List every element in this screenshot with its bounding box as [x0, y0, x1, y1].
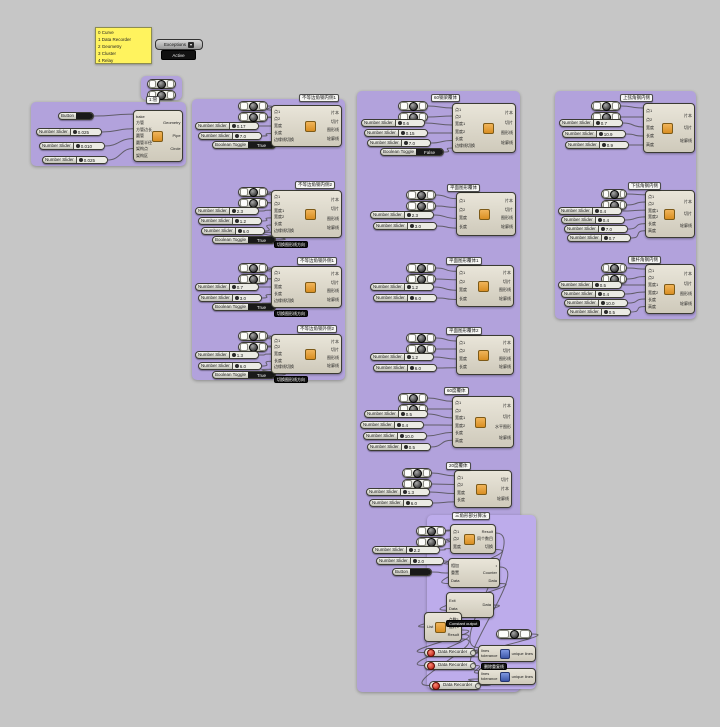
input-label: 高度	[648, 305, 656, 309]
control-knob[interactable]	[416, 526, 446, 536]
cluster-icon	[664, 209, 675, 220]
slider-value: 6.0	[411, 501, 417, 506]
cluster-icon	[435, 622, 446, 633]
slider-track[interactable]: 3.0	[407, 223, 436, 229]
slider-track[interactable]: 0.4	[394, 422, 423, 428]
slider-track[interactable]: 0.9	[599, 142, 628, 148]
slider-track[interactable]: 1.2	[232, 218, 261, 224]
input-label: List	[427, 625, 433, 629]
number-slider[interactable]: Number Slider2.3	[195, 207, 259, 215]
active-button[interactable]: Active	[161, 50, 196, 60]
control-knob[interactable]	[238, 263, 268, 273]
number-slider[interactable]: Number Slider2.0	[376, 557, 444, 565]
control-knob[interactable]	[402, 468, 432, 478]
slider-track[interactable]: 0.025	[76, 157, 107, 163]
slider-track[interactable]: 0.4	[595, 217, 624, 223]
input-label: 点1	[459, 199, 465, 203]
slider-track[interactable]: 0.5	[592, 282, 621, 288]
number-slider[interactable]: Number Slider6.0	[198, 362, 262, 370]
slider-grip[interactable]	[238, 229, 242, 233]
slider-grip[interactable]	[598, 218, 602, 222]
input-label: 点2	[648, 202, 654, 206]
slider-grip[interactable]	[232, 353, 236, 357]
slider-track[interactable]: 0.4	[592, 208, 621, 214]
exceptions-label: Exceptions	[164, 42, 186, 47]
input-label: 点1	[459, 271, 465, 275]
notes-panel[interactable]: 0 Curve 1 Data Recorder 2 Geometry 3 Clu…	[95, 27, 152, 64]
slider-label: Number Slider	[199, 219, 232, 224]
button-component[interactable]: Button	[392, 568, 432, 576]
slider-value: 10.0	[606, 301, 615, 306]
number-slider[interactable]: Number Slider0.17	[195, 122, 259, 130]
output-label: 轮廓线	[499, 365, 511, 369]
knob-ball[interactable]	[409, 394, 418, 403]
exceptions-dropdown[interactable]: Exceptions ▾	[155, 39, 203, 50]
note-line: 4 Relay	[98, 57, 149, 64]
control-knob[interactable]	[238, 101, 268, 111]
output-label: 切片	[684, 282, 692, 286]
slider-track[interactable]: 1.3	[229, 352, 258, 358]
button-press-area[interactable]	[76, 113, 93, 119]
input-label: 宽度1	[455, 416, 465, 420]
control-knob[interactable]	[496, 629, 532, 639]
slider-grip[interactable]	[401, 131, 405, 135]
slider-grip[interactable]	[413, 559, 417, 563]
slider-grip[interactable]	[401, 412, 405, 416]
slider-value: 0.9	[607, 143, 613, 148]
input-label: 圆管	[136, 134, 144, 138]
slider-track[interactable]: 10.9	[596, 131, 625, 137]
group-title-tag: 上弦角钢内侧	[620, 94, 653, 102]
knob-cheek	[593, 102, 601, 110]
slider-grip[interactable]	[403, 490, 407, 494]
number-slider[interactable]: Number Slider0.4	[561, 216, 625, 224]
chevron-down-icon[interactable]: ▾	[188, 42, 194, 48]
cluster-node[interactable]: 点1点2宽度长度片本切片图形线轮廓线	[456, 265, 514, 307]
knob-cheek	[419, 102, 427, 110]
unique-lines-node[interactable]: linestoleranceunique lines	[478, 668, 536, 685]
output-nub	[470, 663, 476, 669]
knob-ball[interactable]	[610, 190, 619, 199]
slider-grip[interactable]	[235, 134, 239, 138]
tag-text: 切换图形线方向	[277, 311, 305, 317]
input-label: 宽度	[457, 491, 465, 495]
slider-grip[interactable]	[410, 366, 414, 370]
output-label: 轮廓线	[499, 297, 511, 301]
output-label: unique lines	[512, 675, 533, 679]
number-slider[interactable]: Number Slider0.4	[558, 207, 622, 215]
output-label: 片本	[331, 340, 339, 344]
number-slider[interactable]: Number Slider1.2	[198, 217, 262, 225]
knob-cheek	[423, 469, 431, 477]
boolean-toggle[interactable]: Boolean ToggleTrue	[212, 371, 276, 379]
slider-track[interactable]: 2.3	[229, 208, 258, 214]
slider-value: 2.0	[418, 559, 424, 564]
record-icon[interactable]	[427, 649, 435, 657]
slider-grip[interactable]	[601, 227, 605, 231]
slider-track[interactable]: 10.0	[598, 300, 627, 306]
slider-track[interactable]: 1.2	[404, 354, 433, 360]
number-slider[interactable]: Number Slider0.5	[567, 308, 631, 316]
slider-grip[interactable]	[406, 501, 410, 505]
slider-value: 7.0	[240, 134, 246, 139]
knob-cheek	[149, 80, 156, 88]
slider-label: Number Slider	[563, 132, 596, 137]
input-label: 点2	[459, 208, 465, 212]
slider-grip[interactable]	[232, 209, 236, 213]
slider-grip[interactable]	[73, 130, 77, 134]
boolean-toggle[interactable]: Boolean ToggleTrue	[212, 141, 276, 149]
number-slider[interactable]: Number Slider3.0	[198, 294, 262, 302]
knob-ball[interactable]	[610, 264, 619, 273]
input-label: 方管	[136, 121, 144, 125]
input-label: 点2	[459, 349, 465, 353]
cluster-node[interactable]: 点1点2宽度长度片本切片图形线轮廓线	[456, 192, 516, 236]
control-knob[interactable]	[406, 333, 436, 343]
number-slider[interactable]: Number Slider0.5	[367, 443, 431, 451]
input-label: 点2	[648, 276, 654, 280]
knob-ball[interactable]	[249, 102, 258, 111]
control-knob[interactable]	[591, 101, 621, 111]
slider-value: 6.0	[415, 296, 421, 301]
cluster-node[interactable]: 点1点2宽度1宽度2长度高度片本切片水平图形轮廓线	[452, 396, 514, 448]
number-slider[interactable]: Number Slider0.7	[559, 119, 623, 127]
slider-grip[interactable]	[397, 423, 401, 427]
knob-ball[interactable]	[602, 102, 611, 111]
slider-track[interactable]: 7.0	[401, 140, 430, 146]
slider-track[interactable]: 3.0	[232, 295, 261, 301]
control-knob[interactable]	[238, 331, 268, 341]
slider-grip[interactable]	[407, 355, 411, 359]
slider-grip[interactable]	[232, 285, 236, 289]
tag-text: 删除重复线	[484, 664, 504, 670]
number-slider[interactable]: Number Slider6.0	[373, 294, 437, 302]
knob-ball[interactable]	[417, 334, 426, 343]
slider-track[interactable]: 2.0	[410, 558, 443, 564]
cluster-icon	[664, 284, 675, 295]
slider-value: 0.5	[600, 283, 606, 288]
slider-grip[interactable]	[410, 224, 414, 228]
slider-track[interactable]: 7.0	[598, 226, 627, 232]
knob-cheek	[408, 191, 416, 199]
control-knob[interactable]	[601, 189, 627, 199]
slider-grip[interactable]	[410, 296, 414, 300]
slider-track[interactable]: 0.17	[229, 123, 258, 129]
label-tag: 切换图形线方向	[274, 376, 308, 383]
input-label: 宽度	[459, 288, 467, 292]
slider-grip[interactable]	[404, 141, 408, 145]
slider-value: 1.3	[408, 490, 414, 495]
slider-grip[interactable]	[398, 121, 402, 125]
number-slider[interactable]: Number Slider7.0	[564, 225, 628, 233]
slider-track[interactable]: 0.5	[401, 444, 430, 450]
number-slider[interactable]: Number Slider0.4	[561, 290, 625, 298]
output-label: 切片	[684, 212, 692, 216]
knob-ball[interactable]	[427, 527, 436, 536]
slider-grip[interactable]	[235, 296, 239, 300]
input-label: 点1	[455, 108, 461, 112]
slider-grip[interactable]	[235, 219, 239, 223]
knob-ball[interactable]	[417, 202, 426, 211]
knob-ball[interactable]	[409, 102, 418, 111]
slider-grip[interactable]	[596, 121, 600, 125]
knob-ball[interactable]	[417, 191, 426, 200]
slider-track[interactable]: 6.0	[403, 500, 432, 506]
input-label: 宽度	[274, 285, 282, 289]
boolean-toggle[interactable]: Boolean ToggleTrue	[212, 236, 276, 244]
slider-label: Number Slider	[196, 285, 229, 290]
slider-value: 0.025	[84, 158, 95, 163]
number-slider[interactable]: Number Slider6.0	[373, 364, 437, 372]
number-slider[interactable]: Number Slider0.010	[39, 142, 105, 150]
slider-grip[interactable]	[404, 445, 408, 449]
knob-cheek	[520, 630, 531, 638]
input-label: 点2	[459, 280, 465, 284]
slider-track[interactable]: 0.010	[73, 143, 104, 149]
recorder-label: Data Recorder	[436, 650, 469, 655]
number-slider[interactable]: Number Slider7.0	[198, 132, 262, 140]
input-label: 点2	[457, 483, 463, 487]
slider-value: 2.3	[237, 209, 243, 214]
number-slider[interactable]: Number Slider0.7	[195, 283, 259, 291]
toggle-value[interactable]: True	[248, 237, 275, 243]
slider-value: 0.5	[609, 310, 615, 315]
cluster-node[interactable]: 点1点2宽度Result同个数目切换	[450, 524, 496, 554]
slider-track[interactable]: 0.4	[595, 291, 624, 297]
slider-label: Number Slider	[562, 218, 595, 223]
input-label: 重置	[451, 571, 459, 575]
boolean-toggle[interactable]: Boolean ToggleFalse	[380, 148, 444, 156]
knob-ball[interactable]	[417, 264, 426, 273]
slider-track[interactable]: 0.5	[601, 309, 630, 315]
knob-ball[interactable]	[249, 188, 258, 197]
slider-label: Number Slider	[367, 490, 400, 495]
knob-cheek	[603, 264, 609, 272]
number-slider[interactable]: Number Slider0.5	[364, 410, 428, 418]
number-slider[interactable]: Number Slider10.0	[564, 299, 628, 307]
input-label: 边缘线切换	[274, 365, 294, 369]
knob-ball[interactable]	[157, 80, 166, 89]
slider-grip[interactable]	[235, 364, 239, 368]
unique-lines-node[interactable]: linestoleranceunique lines	[478, 645, 536, 662]
boolean-toggle[interactable]: Boolean ToggleTrue	[212, 303, 276, 311]
data-recorder[interactable]: Data Recorder	[429, 681, 481, 690]
slider-grip[interactable]	[400, 434, 404, 438]
number-slider[interactable]: Number Slider10.0	[363, 432, 427, 440]
slider-track[interactable]: 1.3	[400, 489, 429, 495]
slider-grip[interactable]	[595, 209, 599, 213]
slider-grip[interactable]	[407, 213, 411, 217]
slider-grip[interactable]	[407, 285, 411, 289]
number-slider[interactable]: Number Slider1.2	[370, 353, 434, 361]
tag-text: 上弦角钢内侧	[623, 95, 650, 101]
knob-ball[interactable]	[249, 332, 258, 341]
number-slider[interactable]: Number Slider1.3	[195, 351, 259, 359]
record-icon[interactable]	[432, 682, 440, 690]
number-slider[interactable]: Number Slider6.0	[201, 227, 265, 235]
slider-grip[interactable]	[79, 158, 83, 162]
slider-track[interactable]: 0.5	[398, 411, 427, 417]
slider-label: Number Slider	[377, 559, 410, 564]
number-slider[interactable]: Number Slider0.15	[364, 129, 428, 137]
input-label: 点1	[274, 339, 280, 343]
cluster-node[interactable]: 点1点2宽度长度切片片本轮廓线	[454, 470, 512, 508]
knob-ball[interactable]	[249, 113, 258, 122]
slider-label: Number Slider	[365, 131, 398, 136]
cluster-icon	[464, 534, 475, 545]
slider-grip[interactable]	[599, 132, 603, 136]
slider-track[interactable]: 2.2	[406, 547, 439, 553]
button-press-area[interactable]	[410, 569, 431, 575]
toggle-value[interactable]: True	[248, 372, 275, 378]
recorder-label: Data Recorder	[441, 683, 474, 688]
slider-grip[interactable]	[598, 292, 602, 296]
cluster-icon	[478, 350, 489, 361]
slider-track[interactable]: 0.025	[70, 129, 101, 135]
group-title-tag: 不等边角钢外侧2	[297, 325, 337, 333]
input-label: 点1	[648, 195, 654, 199]
control-knob[interactable]	[238, 187, 268, 197]
output-label: 轮廓线	[680, 139, 692, 143]
record-icon[interactable]	[427, 662, 435, 670]
number-slider[interactable]: Number Slider2.2	[372, 546, 440, 554]
slider-track[interactable]: 0.6	[395, 120, 424, 126]
input-label: 边缘线切换	[274, 138, 294, 142]
grasshopper-canvas[interactable]: 0 Curve 1 Data Recorder 2 Geometry 3 Clu…	[0, 0, 720, 727]
knob-ball[interactable]	[510, 630, 519, 639]
list-node[interactable]: List点数1运转1Result	[424, 612, 462, 642]
input-label: 长度	[455, 431, 463, 435]
input-label: 宽度	[459, 357, 467, 361]
toggle-label: Boolean Toggle	[381, 150, 416, 155]
control-knob[interactable]	[406, 190, 436, 200]
number-slider[interactable]: Number Slider0.9	[565, 141, 629, 149]
number-slider[interactable]: Number Slider0.5	[558, 281, 622, 289]
cluster-node[interactable]: 点1点2宽度1宽度2长度高度片本切片图形线轮廓线	[645, 264, 695, 314]
slider-label: Number Slider	[43, 158, 76, 163]
slider-track[interactable]: 6.0	[232, 363, 261, 369]
group-title-tag: 不等边角钢内侧1	[299, 94, 339, 102]
slider-value: 3.0	[415, 224, 421, 229]
slider-value: 0.7	[237, 285, 243, 290]
slider-value: 0.4	[603, 218, 609, 223]
data-recorder[interactable]: Data Recorder	[424, 648, 476, 657]
number-slider[interactable]: Number Slider0.025	[36, 128, 102, 136]
number-slider[interactable]: Number Slider1.3	[366, 488, 430, 496]
slider-grip[interactable]	[602, 143, 606, 147]
input-label: 点2	[646, 118, 652, 122]
counter-node[interactable]: 相加重置Data•CounterData	[448, 558, 500, 588]
input-label: 长度	[459, 365, 467, 369]
group-title-tag: 60度覆体	[444, 387, 469, 395]
number-slider[interactable]: Number Slider7.0	[367, 139, 431, 147]
control-knob[interactable]	[398, 393, 428, 403]
slider-track[interactable]: 6.0	[235, 228, 264, 234]
number-slider[interactable]: Number Slider0.025	[42, 156, 108, 164]
slider-track[interactable]: 0.7	[593, 120, 622, 126]
number-slider[interactable]: Number Slider2.3	[370, 211, 434, 219]
slider-value: 0.15	[406, 131, 415, 136]
cluster-node[interactable]: 点1点2宽度1宽度2长度边缘线切换片本切片图形线轮廓线	[271, 190, 342, 238]
cluster-node[interactable]: 点1点2宽度长度边缘线切换片本切片图形线轮廓线	[271, 105, 342, 147]
knob-cheek	[404, 469, 412, 477]
slider-grip[interactable]	[604, 310, 608, 314]
slider-track[interactable]: 0.7	[601, 235, 630, 241]
slider-label: Number Slider	[568, 236, 601, 241]
cluster-node[interactable]: bake方管方管边长圆管圆管半径架构点架构区GeometryPipeCircle	[133, 110, 183, 162]
input-label: 长度	[274, 359, 282, 363]
output-label: 切片	[684, 126, 692, 130]
slider-grip[interactable]	[604, 236, 608, 240]
slider-track[interactable]: 0.15	[398, 130, 427, 136]
cluster-node[interactable]: 点1点2宽度1宽度2长度高度片本切片轮廓线	[645, 190, 695, 238]
cluster-node[interactable]: 点1点2宽度1宽度2长度边缘线切换片本切片图形线轮廓线	[452, 103, 516, 153]
slider-track[interactable]: 1.2	[404, 284, 433, 290]
toggle-value[interactable]: False	[416, 149, 443, 155]
input-label: 长度	[459, 297, 467, 301]
slider-track[interactable]: 2.3	[404, 212, 433, 218]
slider-label: Number Slider	[196, 353, 229, 358]
knob-cheek	[240, 343, 248, 351]
data-recorder[interactable]: Data Recorder	[424, 661, 476, 670]
slider-grip[interactable]	[76, 144, 80, 148]
group-title-tag: 平面图形覆体1	[446, 257, 482, 265]
slider-label: Number Slider	[370, 501, 403, 506]
slider-track[interactable]: 6.0	[407, 295, 436, 301]
note-line: 1 Data Recorder	[98, 36, 149, 43]
slider-track[interactable]: 0.7	[229, 284, 258, 290]
control-knob[interactable]	[147, 79, 176, 89]
number-slider[interactable]: Number Slider3.0	[373, 222, 437, 230]
button-component[interactable]: Button	[58, 112, 94, 120]
cluster-node[interactable]: 点1点2宽度长度高度片本切片轮廓线	[643, 103, 695, 153]
number-slider[interactable]: Number Slider6.0	[369, 499, 433, 507]
number-slider[interactable]: Number Slider0.6	[361, 119, 425, 127]
slider-grip[interactable]	[595, 283, 599, 287]
slider-grip[interactable]	[601, 301, 605, 305]
number-slider[interactable]: Number Slider1.2	[370, 283, 434, 291]
control-knob[interactable]	[601, 263, 627, 273]
cluster-icon	[305, 209, 316, 220]
knob-cheek	[240, 199, 248, 207]
input-label: lines	[481, 672, 489, 676]
control-knob[interactable]	[406, 201, 436, 211]
slider-track[interactable]: 6.0	[407, 365, 436, 371]
output-label: 轮廓线	[327, 226, 339, 230]
number-slider[interactable]: Number Slider10.9	[562, 130, 626, 138]
slider-track[interactable]: 7.0	[232, 133, 261, 139]
group-title-tag: 1:管	[146, 96, 160, 104]
number-slider[interactable]: Number Slider0.7	[567, 234, 631, 242]
input-label: 点1	[648, 269, 654, 273]
slider-grip[interactable]	[409, 548, 413, 552]
slider-label: Number Slider	[37, 130, 70, 135]
slider-track[interactable]: 10.0	[397, 433, 426, 439]
knob-ball[interactable]	[249, 264, 258, 273]
knob-ball[interactable]	[413, 469, 422, 478]
slider-grip[interactable]	[232, 124, 236, 128]
control-knob[interactable]	[406, 263, 436, 273]
cluster-node[interactable]: 点1点2宽度长度边缘线切换片本切片图形线轮廓线	[271, 266, 342, 308]
number-slider[interactable]: Number Slider0.4	[360, 421, 424, 429]
control-knob[interactable]	[238, 112, 268, 122]
knob-cheek	[408, 275, 416, 283]
tag-text: 不等边角钢内侧1	[302, 95, 336, 101]
slider-label: Number Slider	[365, 412, 398, 417]
control-knob[interactable]	[398, 101, 428, 111]
cluster-node[interactable]: 点1点2宽度长度边缘线切换片本切片图形线轮廓线	[271, 334, 342, 374]
cluster-node[interactable]: 点1点2宽度长度片本切片图形线轮廓线	[456, 335, 514, 375]
